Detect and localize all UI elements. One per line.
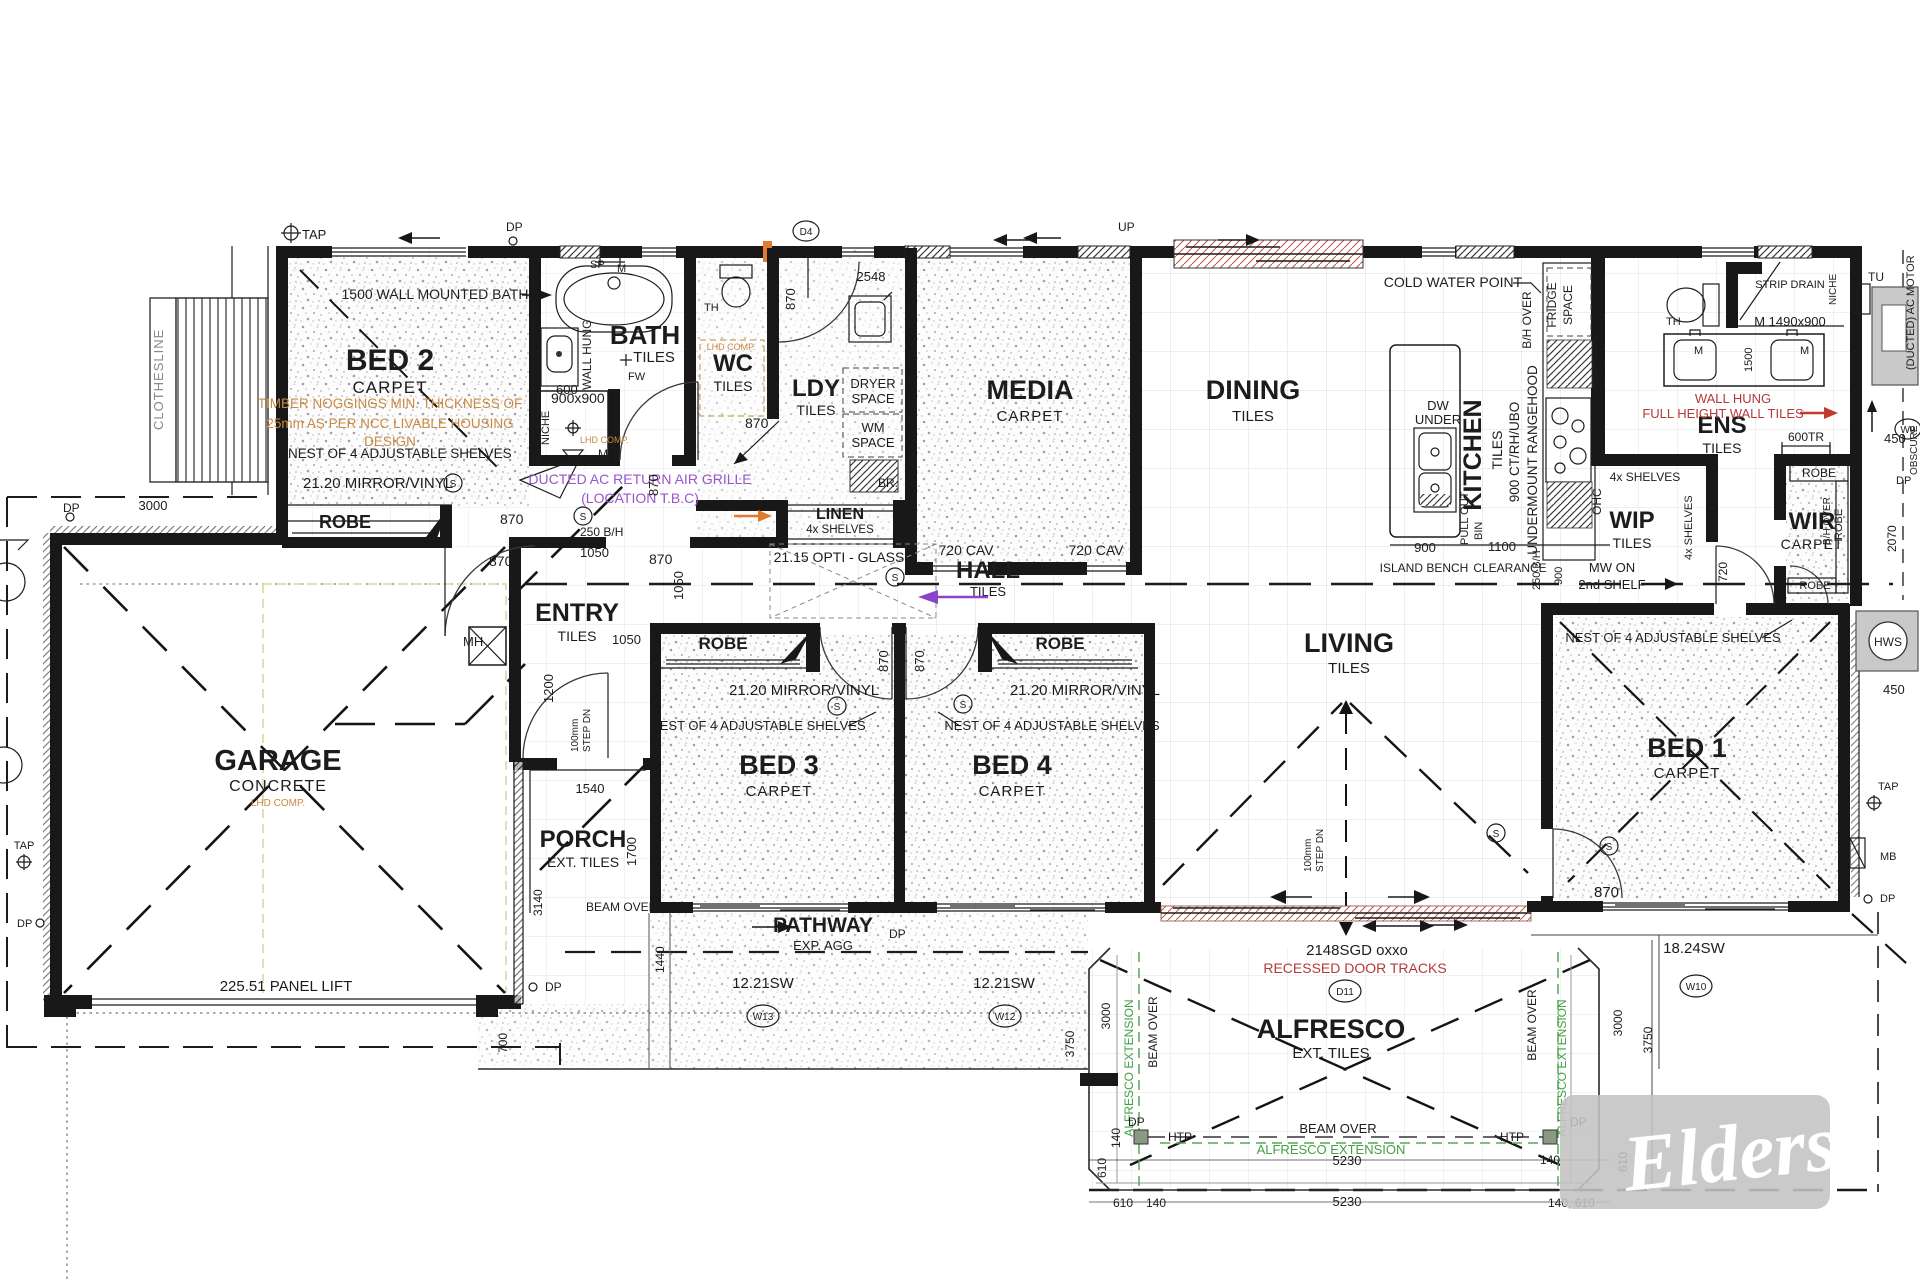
svg-text:EXP. AGG: EXP. AGG [793,938,853,953]
svg-text:SPACE: SPACE [1561,285,1575,325]
svg-text:BATH: BATH [610,320,680,350]
svg-text:4x SHELVES: 4x SHELVES [806,524,874,536]
svg-text:LIVING: LIVING [1304,628,1394,658]
svg-text:21.20 MIRROR/VINYL: 21.20 MIRROR/VINYL [729,682,879,699]
svg-text:ALFRESCO: ALFRESCO [1257,1014,1406,1044]
svg-text:TH: TH [1666,316,1681,328]
svg-text:CLOTHESLINE: CLOTHESLINE [151,329,166,430]
svg-text:870: 870 [745,415,769,431]
svg-text:NEST OF 4 ADJUSTABLE SHELVES: NEST OF 4 ADJUSTABLE SHELVES [1565,630,1781,645]
svg-text:ISLAND BENCH: ISLAND BENCH [1380,561,1469,575]
svg-text:TU: TU [1868,270,1884,284]
svg-text:PULL OUT: PULL OUT [1459,491,1471,545]
svg-text:1050: 1050 [580,545,609,560]
svg-text:HTP: HTP [1168,1130,1192,1144]
svg-text:(DUCTED) AC MOTOR: (DUCTED) AC MOTOR [1905,255,1917,370]
svg-text:2548: 2548 [857,269,886,284]
svg-text:S: S [834,702,841,713]
svg-text:870: 870 [646,474,661,496]
svg-text:DP: DP [1128,1115,1145,1129]
svg-text:S: S [450,479,457,490]
svg-text:12.21SW: 12.21SW [732,975,795,992]
svg-text:700: 700 [496,1033,510,1053]
svg-text:1500 WALL MOUNTED BATH: 1500 WALL MOUNTED BATH [342,286,529,302]
svg-text:STEP DN: STEP DN [1315,829,1326,872]
svg-text:1200: 1200 [541,674,556,703]
svg-text:FRIDGE: FRIDGE [1545,282,1559,327]
svg-text:M: M [617,263,626,275]
svg-text:STEP DN: STEP DN [582,709,593,752]
svg-text:HTP: HTP [1500,1130,1524,1144]
svg-text:NEST OF 4 ADJUSTABLE SHELVES: NEST OF 4 ADJUSTABLE SHELVES [944,718,1160,733]
svg-text:DUCTED AC RETURN AIR GRILLE: DUCTED AC RETURN AIR GRILLE [528,471,751,487]
svg-text:ROBE: ROBE [698,634,747,653]
svg-text:SP: SP [590,259,605,271]
svg-text:CARPET: CARPET [353,378,428,397]
svg-text:870: 870 [912,650,927,672]
svg-text:S: S [960,700,967,711]
svg-text:12.21SW: 12.21SW [973,975,1036,992]
svg-text:3750: 3750 [1641,1026,1655,1053]
svg-text:HWS: HWS [1874,635,1902,649]
svg-text:ALFRESCO EXTENSION: ALFRESCO EXTENSION [1257,1142,1406,1157]
svg-text:EXT. TILES: EXT. TILES [1292,1045,1369,1062]
svg-text:CARPET: CARPET [997,408,1064,425]
svg-text:140: 140 [1146,1196,1166,1210]
svg-text:SPACE: SPACE [851,435,894,450]
svg-text:SPACE: SPACE [851,391,894,406]
svg-text:870: 870 [500,511,524,527]
svg-text:1700: 1700 [624,837,639,866]
svg-text:ROBE: ROBE [1833,509,1845,540]
svg-text:ROBE: ROBE [1035,634,1084,653]
svg-text:OBSCURE: OBSCURE [1909,425,1920,475]
svg-text:DINING: DINING [1206,375,1301,405]
svg-text:1440: 1440 [653,946,667,973]
svg-text:TILES: TILES [797,402,836,418]
svg-text:BR.: BR. [878,476,898,490]
svg-text:900 CT/RH/UBO: 900 CT/RH/UBO [1507,402,1522,503]
svg-text:25mm AS PER NCC LIVABLE HOUSIN: 25mm AS PER NCC LIVABLE HOUSING [266,416,513,431]
svg-text:TILES: TILES [1489,431,1505,470]
svg-text:ROBE: ROBE [319,512,371,532]
svg-text:720 CAV: 720 CAV [939,542,995,558]
svg-text:LHD COMP.: LHD COMP. [580,435,629,445]
svg-text:MW ON: MW ON [1589,560,1635,575]
svg-text:900: 900 [1414,540,1436,555]
svg-text:LINEN: LINEN [816,506,864,523]
svg-text:3000: 3000 [1099,1002,1113,1029]
svg-text:CARPET: CARPET [1654,765,1721,782]
svg-text:FULL HEIGHT WALL TILES: FULL HEIGHT WALL TILES [1642,406,1804,421]
svg-text:DP: DP [17,918,32,930]
svg-text:CONCRETE: CONCRETE [229,778,327,795]
svg-text:S: S [892,573,899,584]
svg-text:1100: 1100 [1488,539,1516,554]
svg-text:BEAM OVER: BEAM OVER [1299,1121,1376,1136]
svg-text:1050: 1050 [671,571,686,600]
svg-text:ENTRY: ENTRY [535,599,619,627]
svg-text:UNDER: UNDER [1415,412,1461,427]
svg-text:CARPET: CARPET [979,783,1046,800]
svg-text:FW: FW [628,371,646,383]
svg-text:MH: MH [463,634,483,649]
svg-text:450: 450 [1883,682,1905,697]
svg-text:610: 610 [1095,1158,1109,1178]
svg-text:2070: 2070 [1885,525,1899,552]
svg-text:TILES: TILES [1613,535,1652,551]
svg-text:BIN: BIN [1473,522,1485,540]
svg-text:B/H OVER: B/H OVER [1520,291,1534,349]
svg-text:TILES: TILES [633,349,675,366]
svg-text:3000: 3000 [1611,1009,1625,1036]
svg-text:RECESSED DOOR TRACKS: RECESSED DOOR TRACKS [1263,960,1446,976]
svg-text:900x900: 900x900 [551,390,605,406]
svg-text:100mm: 100mm [1303,839,1314,872]
svg-text:4x SHELVES: 4x SHELVES [1683,495,1695,560]
svg-text:MB: MB [1880,851,1897,863]
svg-text:DP: DP [545,980,562,994]
svg-text:870: 870 [489,553,513,569]
svg-text:3000: 3000 [139,498,168,513]
svg-text:LHD COMP.: LHD COMP. [251,798,305,809]
svg-text:UNDERMOUNT RANGEHOOD: UNDERMOUNT RANGEHOOD [1525,365,1540,555]
svg-text:140: 140 [1109,1128,1123,1148]
svg-text:BED 3: BED 3 [739,750,819,780]
svg-text:21.15 OPTI - GLASS: 21.15 OPTI - GLASS [774,549,905,565]
svg-text:TILES: TILES [558,628,597,644]
svg-text:S: S [1606,842,1613,853]
svg-text:BED 4: BED 4 [972,750,1052,780]
svg-text:BED 2: BED 2 [346,344,434,377]
svg-text:CARPET: CARPET [746,783,813,800]
svg-text:250 B/H: 250 B/H [580,525,623,539]
svg-text:OHC: OHC [1590,361,1604,388]
svg-text:3750: 3750 [1063,1030,1077,1057]
svg-text:DP: DP [1896,475,1911,487]
svg-text:900: 900 [1553,567,1565,585]
svg-text:3140: 3140 [531,889,545,916]
svg-text:BED 1: BED 1 [1647,733,1727,763]
svg-text:D11: D11 [1336,987,1354,998]
svg-text:D4: D4 [800,227,813,238]
svg-text:LDY: LDY [792,375,840,402]
svg-text:TH: TH [704,302,719,314]
svg-text:TAP: TAP [1878,781,1899,793]
svg-text:ROBE: ROBE [1799,580,1830,592]
svg-text:GARAGE: GARAGE [214,745,341,777]
svg-text:DP: DP [506,220,523,234]
svg-text:TAP: TAP [302,227,326,242]
svg-text:NEST OF 4 ADJUSTABLE SHELVES: NEST OF 4 ADJUSTABLE SHELVES [288,446,512,461]
svg-text:100mm: 100mm [570,719,581,752]
svg-text:870: 870 [876,650,891,672]
svg-text:(LOCATION T.B.C): (LOCATION T.B.C) [581,490,699,506]
svg-text:S: S [580,512,587,523]
svg-text:250 B/H: 250 B/H [1531,550,1543,590]
svg-text:NICHE: NICHE [1828,274,1839,305]
svg-text:NEST OF 4 ADJUSTABLE SHELVES: NEST OF 4 ADJUSTABLE SHELVES [650,718,866,733]
svg-text:1540: 1540 [576,781,605,796]
svg-text:TILES: TILES [1232,408,1274,425]
svg-text:4x SHELVES: 4x SHELVES [1610,470,1680,484]
svg-text:DP: DP [889,927,906,941]
svg-text:W12: W12 [995,1012,1016,1023]
svg-text:WALL HUNG: WALL HUNG [580,320,594,390]
svg-text:STRIP DRAIN: STRIP DRAIN [1755,279,1825,291]
svg-text:720 CAV: 720 CAV [1069,542,1125,558]
svg-text:TIMBER NOGGINGS MIN. THICKNESS: TIMBER NOGGINGS MIN. THICKNESS OF [258,396,523,411]
svg-text:UP: UP [1118,220,1135,234]
svg-text:WM: WM [861,420,884,435]
svg-text:870: 870 [783,288,798,310]
svg-text:B/H OVER: B/H OVER [1822,497,1833,545]
svg-text:18.24SW: 18.24SW [1663,940,1726,957]
svg-text:TAP: TAP [14,840,35,852]
svg-text:NICHE: NICHE [540,411,552,445]
svg-text:BEAM OVER: BEAM OVER [1146,996,1160,1068]
svg-text:TILES: TILES [1703,440,1742,456]
svg-text:600TR: 600TR [1788,430,1824,444]
svg-text:2148SGD oxxo: 2148SGD oxxo [1306,942,1408,959]
svg-text:21.20 MIRROR/VINYL: 21.20 MIRROR/VINYL [1010,682,1160,699]
svg-text:M 1490x900: M 1490x900 [1754,314,1826,329]
svg-text:610: 610 [1113,1196,1133,1210]
svg-text:WALL HUNG: WALL HUNG [1695,391,1771,406]
svg-text:DW: DW [1427,398,1449,413]
svg-text:WC: WC [713,350,753,377]
svg-text:WIP: WIP [1609,507,1654,534]
svg-text:21.20 MIRROR/VINYL: 21.20 MIRROR/VINYL [303,475,453,492]
svg-text:LHD COMP.: LHD COMP. [707,342,756,352]
svg-text:TILES: TILES [714,378,753,394]
svg-text:870: 870 [649,551,673,567]
svg-text:S: S [1493,829,1500,840]
svg-text:MEDIA: MEDIA [987,375,1074,405]
svg-text:1500: 1500 [1743,348,1755,372]
svg-text:COLD WATER POINT: COLD WATER POINT [1384,274,1523,290]
svg-text:DP: DP [1880,893,1895,905]
svg-text:W13: W13 [753,1012,774,1023]
svg-text:720: 720 [1716,562,1730,582]
svg-text:DRYER: DRYER [850,376,895,391]
svg-text:M: M [598,447,608,461]
svg-text:OHC: OHC [1590,488,1604,515]
svg-text:PORCH: PORCH [540,826,627,853]
svg-text:870: 870 [1594,884,1619,901]
svg-text:BEAM OVER: BEAM OVER [586,900,658,914]
svg-text:EXT. TILES: EXT. TILES [547,854,619,870]
svg-text:ROBE: ROBE [1802,466,1836,480]
svg-text:M: M [1694,345,1703,357]
svg-text:225.51 PANEL LIFT: 225.51 PANEL LIFT [220,978,353,995]
svg-text:M: M [1800,345,1809,357]
svg-text:2nd SHELF: 2nd SHELF [1578,577,1645,592]
svg-text:BEAM OVER: BEAM OVER [1525,989,1539,1061]
svg-text:W10: W10 [1686,982,1707,993]
svg-text:TILES: TILES [1328,660,1370,677]
svg-text:1050: 1050 [612,632,641,647]
